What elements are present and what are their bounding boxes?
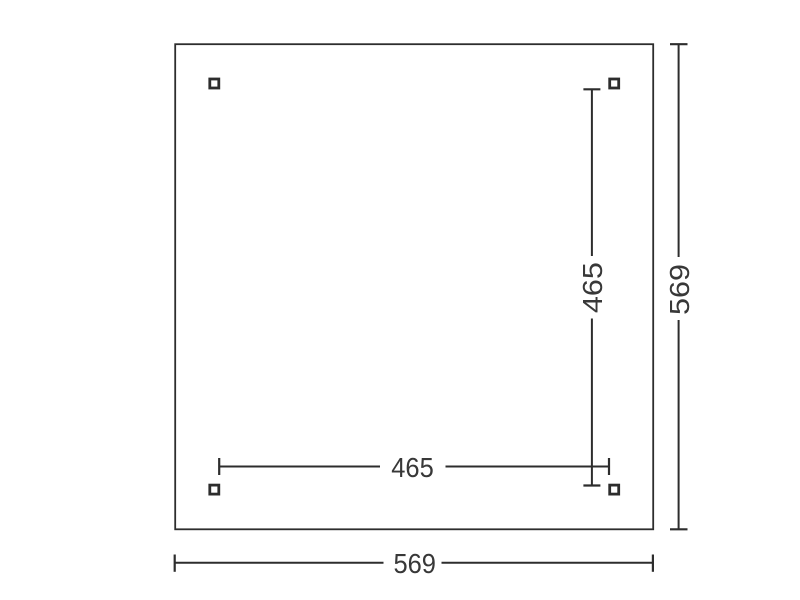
- svg-text:569: 569: [393, 548, 436, 579]
- svg-text:569: 569: [664, 264, 695, 315]
- svg-text:465: 465: [391, 452, 434, 483]
- svg-text:465: 465: [577, 262, 608, 313]
